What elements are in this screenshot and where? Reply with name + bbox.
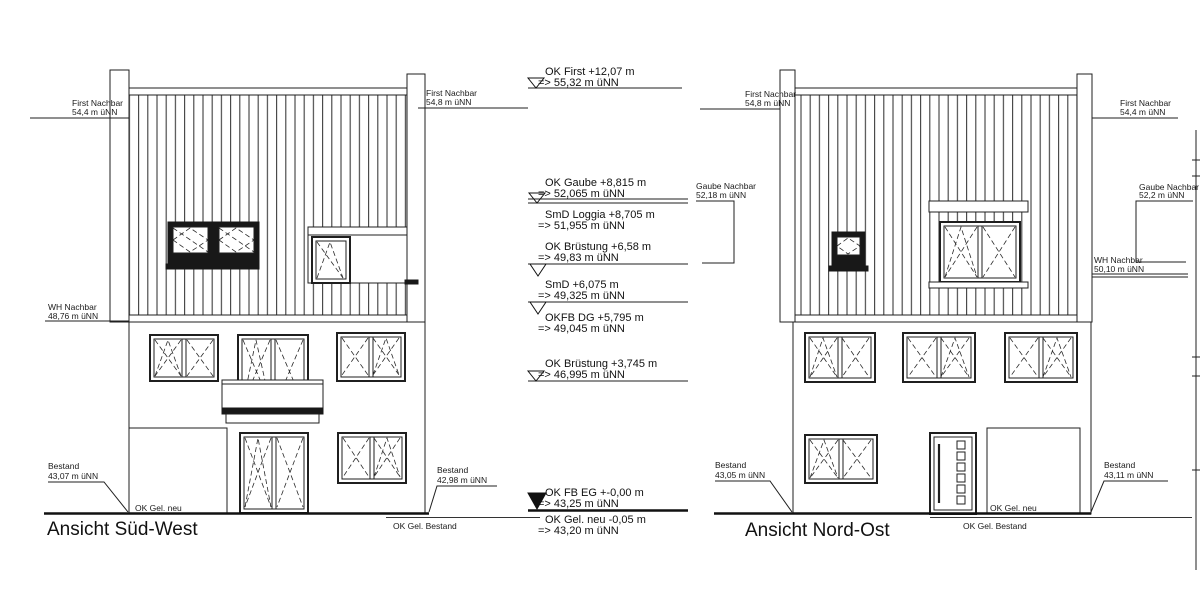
ok-gel-bestand-label: OK Gel. Bestand [963,521,1027,531]
ok-gel-bestand-label: OK Gel. Bestand [393,521,457,531]
svg-text:=> 51,955 m üNN: => 51,955 m üNN [538,220,625,232]
og-window-3 [1005,333,1077,382]
dormer-window-pair [166,222,259,269]
right-post [1077,74,1092,322]
og-window-1 [805,333,875,382]
svg-text:=> 49,045 m üNN: => 49,045 m üNN [538,323,625,335]
eg-window [805,435,877,483]
bestand-left-label: Bestand [48,461,79,471]
svg-text:43,07 m üNN: 43,07 m üNN [48,471,98,481]
drawing-canvas: First Nachbar 54,4 m üNN First Nachbar 5… [0,0,1200,600]
elevation-drawing-sheet: First Nachbar 54,4 m üNN First Nachbar 5… [0,0,1200,600]
svg-text:=> 55,32 m üNN: => 55,32 m üNN [538,77,619,89]
svg-text:=> 43,25 m üNN: => 43,25 m üNN [538,498,619,510]
right-elevation-title: Ansicht Nord-Ost [745,520,890,541]
svg-text:52,18 m üNN: 52,18 m üNN [696,190,746,200]
svg-text:54,8 m üNN: 54,8 m üNN [745,98,790,108]
svg-text:50,10 m üNN: 50,10 m üNN [1094,264,1144,274]
svg-text:42,98 m üNN: 42,98 m üNN [437,475,487,485]
og-window-2 [903,333,975,382]
bestand-right-label: Bestand [437,465,468,475]
cladding-top-band [129,88,407,95]
attic-window [829,232,868,271]
svg-text:=> 52,065 m üNN: => 52,065 m üNN [538,188,625,200]
balcony [222,380,323,423]
cladding-bottom-band [795,315,1077,322]
svg-text:54,8 m üNN: 54,8 m üNN [426,97,471,107]
eg-door [240,433,308,513]
svg-text:48,76 m üNN: 48,76 m üNN [48,311,98,321]
left-elevation-title: Ansicht Süd-West [47,519,198,540]
svg-text:52,2 m üNN: 52,2 m üNN [1139,190,1184,200]
svg-text:=> 43,20 m üNN: => 43,20 m üNN [538,525,619,537]
ok-gel-neu-label: OK Gel. neu [990,503,1037,513]
svg-text:43,05 m üNN: 43,05 m üNN [715,470,765,480]
cladding-bottom-band [129,315,407,322]
ok-gel-neu-label: OK Gel. neu [135,503,182,513]
cladding-top-band [795,88,1077,95]
svg-text:=> 49,325 m üNN: => 49,325 m üNN [538,290,625,302]
svg-text:43,11 m üNN: 43,11 m üNN [1104,470,1153,480]
bestand-right-label: Bestand [1104,460,1135,470]
bestand-left-label: Bestand [715,460,746,470]
loggia [308,227,418,284]
right-post [407,74,425,322]
svg-text:54,4 m üNN: 54,4 m üNN [72,107,117,117]
og-window-1 [150,335,218,381]
entrance-door [930,433,976,514]
eg-window [338,433,406,483]
svg-text:54,4 m üNN: 54,4 m üNN [1120,107,1165,117]
og-window-3 [337,333,405,381]
svg-text:=> 49,83 m üNN: => 49,83 m üNN [538,252,619,264]
svg-text:=> 46,995 m üNN: => 46,995 m üNN [538,369,625,381]
